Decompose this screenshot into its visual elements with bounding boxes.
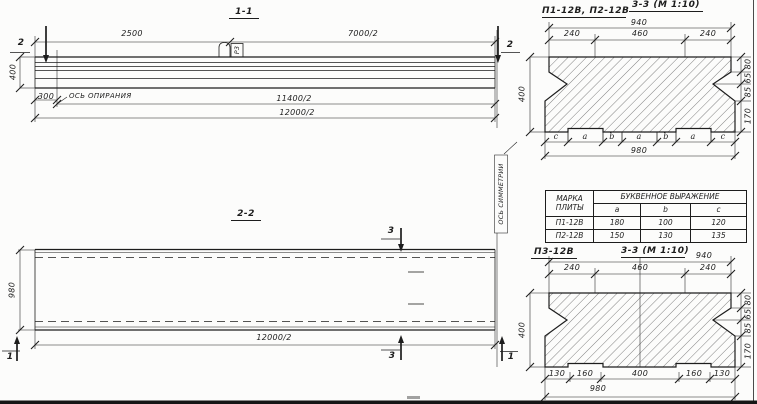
letter-c-1: c xyxy=(554,132,559,141)
dim-80-top: 80 xyxy=(744,59,753,70)
dim-65-top: 65 xyxy=(744,73,753,84)
dim-300: 300 xyxy=(38,92,54,101)
section-2-2-title: 2-2 xyxy=(231,209,261,221)
dim-940-top: 940 xyxy=(631,18,647,27)
dim-400-section-top: 400 xyxy=(518,86,527,102)
letter-c-2: c xyxy=(721,132,726,141)
cut-marker-1-right: 1 xyxy=(508,352,515,362)
section-1-1-title: 1-1 xyxy=(229,7,259,19)
dim-400-section-bottom: 400 xyxy=(518,322,527,338)
table-cell-a: 180 xyxy=(594,217,641,230)
section-3-3-title-top: 3-3 (М 1:10) xyxy=(629,0,703,12)
dim-12000-half-elevation: 12000/2 xyxy=(279,108,314,117)
dim-160-left: 160 xyxy=(577,369,593,378)
dim-240-left-top: 240 xyxy=(564,29,580,38)
letter-a-2: a xyxy=(636,132,641,141)
section-1-1-beam xyxy=(10,26,520,122)
table-subheader-b: b xyxy=(641,204,691,217)
dim-12000-half-plan: 12000/2 xyxy=(256,333,291,342)
dim-980-top: 980 xyxy=(631,146,647,155)
table-cell-b: 100 xyxy=(641,217,691,230)
dim-240-right-top: 240 xyxy=(700,29,716,38)
table-cell-c: 135 xyxy=(691,230,747,243)
table-header-expression: БУКВЕННОЕ ВЫРАЖЕНИЕ xyxy=(594,191,747,204)
cut-marker-2-right: 2 xyxy=(507,40,514,50)
table-cell-c: 120 xyxy=(691,217,747,230)
dim-980-bottom: 980 xyxy=(590,384,606,393)
drawing-sheet: 1-1 2500 7000/2 400 300 ОСЬ ОПИРАНИЯ 114… xyxy=(0,0,757,404)
symmetry-axis-label: ОСЬ СИММЕТРИИ xyxy=(497,163,505,224)
cut-marker-3-top: 3 xyxy=(388,226,395,236)
dim-460-top: 460 xyxy=(632,29,648,38)
dim-170-bottom: 170 xyxy=(744,343,753,359)
cut-marker-2-left: 2 xyxy=(18,38,25,48)
dim-65-bottom: 65 xyxy=(744,309,753,320)
dim-130-left: 130 xyxy=(549,369,565,378)
table-cell-mark: П2-12В xyxy=(546,230,594,243)
dim-11400-half: 11400/2 xyxy=(276,94,311,103)
dim-160-right: 160 xyxy=(686,369,702,378)
dim-460-bottom: 460 xyxy=(632,263,648,272)
letter-b-2: b xyxy=(663,132,668,141)
support-axis-label: ОСЬ ОПИРАНИЯ xyxy=(69,92,132,100)
dim-2500: 2500 xyxy=(121,29,143,38)
dim-130-right: 130 xyxy=(714,369,730,378)
dim-85-top: 85 xyxy=(744,87,753,98)
cut-marker-1-left: 1 xyxy=(7,352,14,362)
dim-940-bottom: 940 xyxy=(696,251,712,260)
plate-mark-label-bottom: П3-12В xyxy=(531,247,577,259)
section-3-3-title-bottom: 3-3 (М 1:10) xyxy=(621,246,685,258)
dim-240-left-bottom: 240 xyxy=(564,263,580,272)
plate-table: МАРКА ПЛИТЫ БУКВЕННОЕ ВЫРАЖЕНИЕ a b c П1… xyxy=(545,190,747,243)
dim-980-plan: 980 xyxy=(8,282,17,298)
table-row: П1-12В 180 100 120 xyxy=(546,217,747,230)
letter-a-3: a xyxy=(690,132,695,141)
plate-marks-label-top: П1-12В, П2-12В xyxy=(542,6,626,18)
table-cell-mark: П1-12В xyxy=(546,217,594,230)
lifting-loop-mark: Р3 xyxy=(233,46,241,54)
section-3-3-bottom xyxy=(526,256,751,401)
letter-a-1: a xyxy=(582,132,587,141)
section-2-2-plan xyxy=(2,30,518,367)
dim-7000-half: 7000/2 xyxy=(348,29,378,38)
table-subheader-a: a xyxy=(594,204,641,217)
dim-400-bottom-row: 400 xyxy=(632,369,648,378)
dim-400-beam: 400 xyxy=(9,64,18,80)
dim-240-right-bottom: 240 xyxy=(700,263,716,272)
table-subheader-c: c xyxy=(691,204,747,217)
dim-85-bottom: 85 xyxy=(744,323,753,334)
dim-80-bottom: 80 xyxy=(744,295,753,306)
cut-marker-3-bottom: 3 xyxy=(389,351,396,361)
table-cell-b: 130 xyxy=(641,230,691,243)
table-row: П2-12В 150 130 135 xyxy=(546,230,747,243)
table-header-mark: МАРКА ПЛИТЫ xyxy=(546,191,594,217)
dim-170-top: 170 xyxy=(744,108,753,124)
letter-b-1: b xyxy=(609,132,614,141)
table-cell-a: 150 xyxy=(594,230,641,243)
